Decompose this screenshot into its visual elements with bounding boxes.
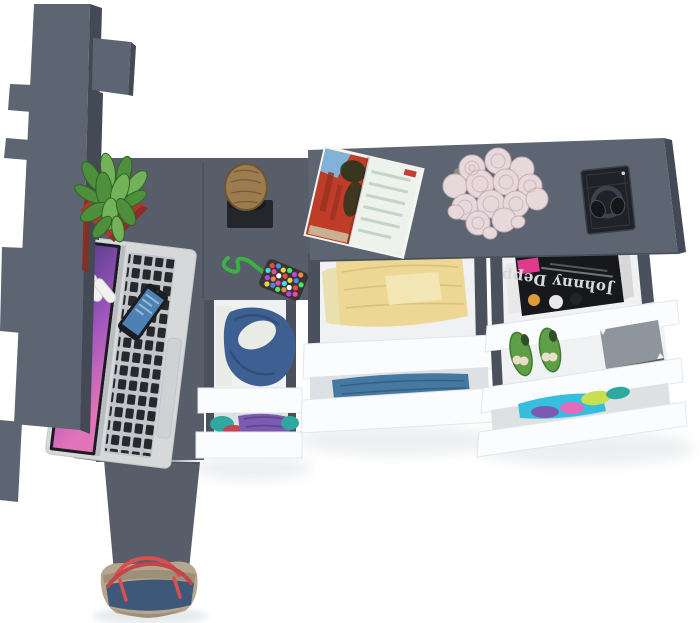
teal-clothes	[281, 416, 299, 430]
left-chest	[196, 300, 302, 458]
wardrobe-shelf-tab	[4, 138, 30, 160]
right-chest: Johnny Depp	[477, 240, 687, 457]
shadow-left-chest	[192, 455, 312, 481]
wardrobe-upper-panel	[92, 38, 131, 95]
tote-bag	[101, 558, 198, 618]
yellow-clothes-patch	[385, 272, 442, 305]
middle-chest	[301, 247, 495, 433]
drawer-rail	[474, 247, 488, 345]
pink-clothes	[560, 402, 584, 414]
purple-clothes	[531, 406, 559, 418]
magazine-detail	[528, 294, 540, 306]
scene-svg: Johnny Depp	[0, 0, 700, 623]
shoe-bow	[549, 353, 558, 362]
left-chest-drawer-2-front	[196, 432, 302, 458]
rose	[526, 188, 548, 210]
magazine-detail	[549, 295, 563, 309]
left-chest-drawer-1-front	[198, 388, 302, 413]
wardrobe-shelf-tab	[0, 420, 22, 502]
shoe-bow	[520, 357, 529, 366]
drawer-rail	[308, 252, 320, 350]
headphones-box	[581, 166, 635, 235]
product-render-stage: Johnny Depp	[0, 0, 700, 623]
wardrobe-top-face	[14, 4, 90, 430]
drawer-rail	[490, 251, 504, 330]
drawer-rail	[204, 300, 214, 392]
